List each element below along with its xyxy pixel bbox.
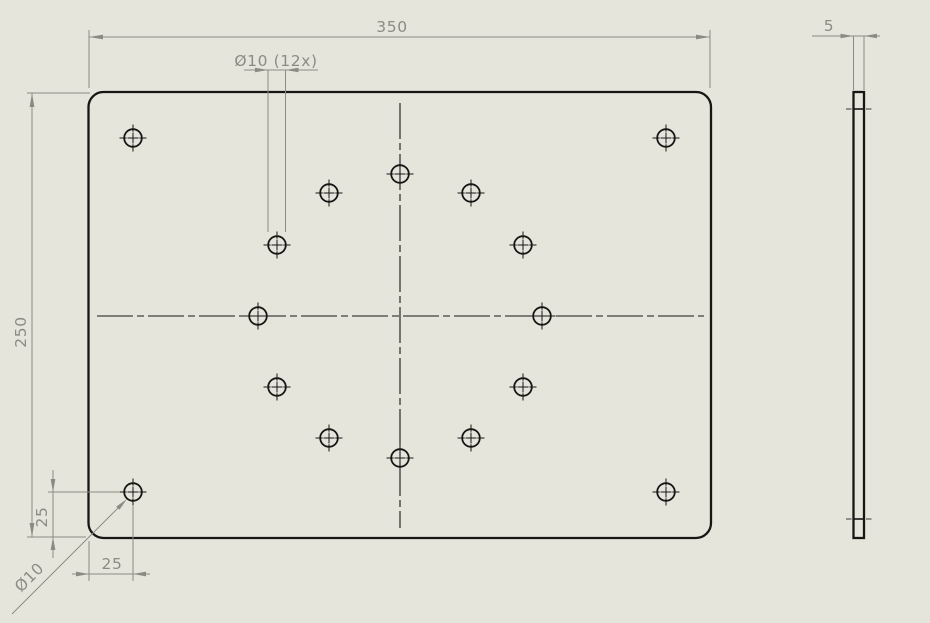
hole-marker[interactable] bbox=[510, 232, 537, 259]
arrowhead bbox=[30, 93, 35, 107]
dim-thickness[interactable]: 5 bbox=[812, 17, 880, 90]
hole-marker[interactable] bbox=[316, 180, 343, 207]
dim-width-text[interactable]: 350 bbox=[376, 18, 407, 36]
dim-width-350[interactable]: 350 bbox=[89, 18, 710, 88]
hole-marker[interactable] bbox=[264, 374, 291, 401]
hole-marker[interactable] bbox=[653, 479, 680, 506]
arrowhead bbox=[841, 34, 854, 38]
arrowhead bbox=[696, 35, 710, 40]
hole-marker[interactable] bbox=[387, 445, 414, 472]
hole-marker[interactable] bbox=[120, 125, 147, 152]
hole-pattern-label[interactable]: Ø10 (12x) bbox=[234, 52, 317, 70]
dim-height-text[interactable]: 250 bbox=[12, 316, 30, 347]
corner-hole-dia-text[interactable]: Ø10 bbox=[11, 559, 48, 596]
arrowhead bbox=[116, 499, 127, 510]
arrowhead bbox=[864, 34, 877, 38]
arrowhead bbox=[51, 479, 56, 492]
hole-marker[interactable] bbox=[458, 425, 485, 452]
hole-marker[interactable] bbox=[458, 180, 485, 207]
side-outline[interactable] bbox=[854, 92, 865, 538]
dim-corner-offset-y[interactable]: 25 bbox=[33, 470, 119, 558]
dim-thickness-text[interactable]: 5 bbox=[824, 17, 834, 35]
arrowhead bbox=[76, 572, 89, 577]
hole-marker[interactable] bbox=[653, 125, 680, 152]
front-view[interactable] bbox=[89, 92, 712, 538]
dim-offset-x-text[interactable]: 25 bbox=[102, 555, 123, 573]
hole-marker[interactable] bbox=[387, 161, 414, 188]
hole-marker[interactable] bbox=[510, 374, 537, 401]
hole-marker[interactable] bbox=[529, 303, 556, 330]
arrowhead bbox=[133, 572, 146, 577]
drawing-sheet: 350 250 Ø10 (12x) 25 25 Ø bbox=[0, 0, 930, 623]
dim-offset-y-text[interactable]: 25 bbox=[33, 507, 51, 528]
hole-marker[interactable] bbox=[316, 425, 343, 452]
arrowhead bbox=[89, 35, 103, 40]
dim-height-250[interactable]: 250 bbox=[12, 93, 90, 537]
arrowhead bbox=[51, 537, 56, 550]
drawing-canvas: 350 250 Ø10 (12x) 25 25 Ø bbox=[0, 0, 930, 623]
side-view[interactable] bbox=[846, 92, 872, 538]
hole-marker[interactable] bbox=[245, 303, 272, 330]
callout-hole-pattern[interactable]: Ø10 (12x) bbox=[234, 52, 318, 232]
hole-marker[interactable] bbox=[264, 232, 291, 259]
